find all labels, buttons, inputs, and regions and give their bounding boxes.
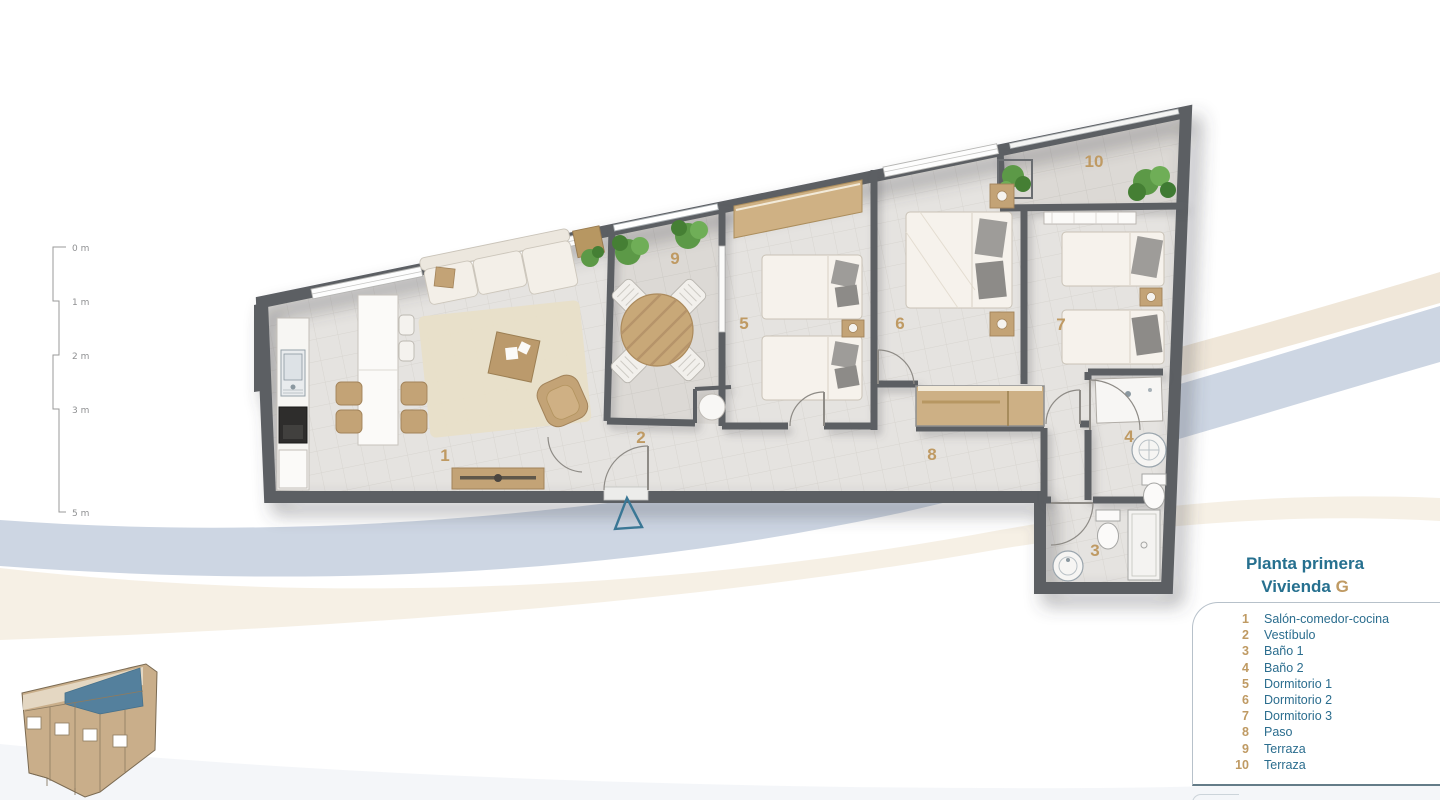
dining-chair-tan bbox=[336, 382, 362, 405]
legend-label: Baño 2 bbox=[1264, 661, 1304, 675]
oven-door bbox=[283, 425, 303, 439]
room-number-3: 3 bbox=[1090, 541, 1099, 560]
room-number-2: 2 bbox=[636, 428, 645, 447]
scale-label-0m: 0 m bbox=[72, 244, 89, 254]
legend-num: 10 bbox=[1227, 758, 1249, 772]
legend-label: Vestíbulo bbox=[1264, 628, 1315, 642]
legend-row: 9Terraza bbox=[1227, 742, 1440, 758]
scale-label-5m: 5 m bbox=[72, 509, 89, 519]
room-number-5: 5 bbox=[739, 314, 748, 333]
wardrobe-door-track bbox=[918, 386, 1042, 391]
pillow bbox=[835, 285, 860, 308]
wardrobe-paso bbox=[916, 386, 1044, 426]
pillow bbox=[831, 260, 859, 288]
coffee-table-paper bbox=[505, 347, 518, 360]
legend-row: 6Dormitorio 2 bbox=[1227, 693, 1440, 709]
legend-row: 2Vestíbulo bbox=[1227, 628, 1440, 644]
legend-num: 9 bbox=[1227, 742, 1249, 756]
legend-label: Baño 1 bbox=[1264, 644, 1304, 658]
washbasin-round bbox=[1053, 551, 1083, 581]
legend-row: 10Terraza bbox=[1227, 758, 1440, 774]
scale-label-3m: 3 m bbox=[72, 406, 89, 416]
hall-round-table bbox=[699, 394, 725, 420]
legend-row: 4Baño 2 bbox=[1227, 661, 1440, 677]
shower-tray bbox=[1128, 510, 1160, 580]
subtitle-word: Vivienda bbox=[1261, 577, 1331, 596]
sofa-seat bbox=[521, 240, 578, 295]
legend-row: 8Paso bbox=[1227, 725, 1440, 741]
dining-chair-white bbox=[399, 315, 414, 335]
legend-num: 5 bbox=[1227, 677, 1249, 691]
dining-chair-tan bbox=[401, 410, 427, 433]
scale-label-1m: 1 m bbox=[72, 298, 89, 308]
vanity-faucet bbox=[1125, 391, 1131, 397]
pillow bbox=[975, 218, 1008, 258]
room-legend: 1Salón-comedor-cocina 2Vestíbulo 3Baño 1… bbox=[1192, 602, 1440, 786]
legend-row: 3Baño 1 bbox=[1227, 644, 1440, 660]
legend-row: 1Salón-comedor-cocina bbox=[1227, 612, 1440, 628]
vanity bbox=[1095, 377, 1162, 423]
tv-console bbox=[452, 468, 544, 489]
pillow bbox=[1131, 314, 1162, 355]
next-section-hint bbox=[1192, 794, 1239, 800]
kitchen-cabinet bbox=[279, 450, 307, 488]
pillow bbox=[975, 261, 1007, 300]
legend-label: Terraza bbox=[1264, 758, 1306, 772]
legend-row: 7Dormitorio 3 bbox=[1227, 709, 1440, 725]
room-number-8: 8 bbox=[927, 445, 936, 464]
page: 1 2 3 4 5 6 7 8 9 10 0 m 1 m 2 m 3 m 5 m bbox=[0, 0, 1440, 800]
closet-shelf bbox=[1044, 212, 1136, 224]
legend-num: 7 bbox=[1227, 709, 1249, 723]
legend-num: 2 bbox=[1227, 628, 1249, 642]
nightstand-knob bbox=[997, 319, 1007, 329]
kitchen bbox=[277, 318, 309, 490]
page-subtitle: Vivienda G bbox=[1192, 575, 1418, 598]
nightstand-knob bbox=[849, 324, 858, 333]
legend-row: 5Dormitorio 1 bbox=[1227, 677, 1440, 693]
room-number-9: 9 bbox=[670, 249, 679, 268]
legend-num: 6 bbox=[1227, 693, 1249, 707]
subtitle-letter: G bbox=[1336, 577, 1349, 596]
scale-bar: 0 m 1 m 2 m 3 m 5 m bbox=[53, 244, 89, 519]
scale-label-2m: 2 m bbox=[72, 352, 89, 362]
room-number-4: 4 bbox=[1124, 427, 1134, 446]
legend-label: Dormitorio 1 bbox=[1264, 677, 1332, 691]
legend-num: 8 bbox=[1227, 725, 1249, 739]
sofa-cushion-tan bbox=[434, 267, 455, 288]
legend-label: Paso bbox=[1264, 725, 1293, 739]
room-number-7: 7 bbox=[1056, 315, 1065, 334]
room-number-6: 6 bbox=[895, 314, 904, 333]
plan-title: Planta primera Vivienda G bbox=[1192, 552, 1418, 598]
glass-door-terrace9 bbox=[719, 246, 725, 332]
terrace-table bbox=[621, 294, 693, 366]
tv-knob bbox=[494, 474, 502, 482]
dining-chair-tan bbox=[336, 410, 362, 433]
legend-label: Salón-comedor-cocina bbox=[1264, 612, 1389, 626]
sink-basin bbox=[284, 354, 302, 380]
legend-num: 3 bbox=[1227, 644, 1249, 658]
legend-num: 4 bbox=[1227, 661, 1249, 675]
toilet bbox=[1142, 474, 1166, 509]
pillow bbox=[831, 341, 859, 369]
pillow bbox=[834, 365, 859, 389]
legend-num: 1 bbox=[1227, 612, 1249, 626]
room-number-1: 1 bbox=[440, 446, 449, 465]
nightstand-knob bbox=[1147, 293, 1156, 302]
dining-chair-white bbox=[399, 341, 414, 361]
dining-chair-tan bbox=[401, 382, 427, 405]
legend-label: Dormitorio 3 bbox=[1264, 709, 1332, 723]
legend-label: Dormitorio 2 bbox=[1264, 693, 1332, 707]
page-title: Planta primera bbox=[1192, 552, 1418, 575]
nightstand-knob bbox=[997, 191, 1007, 201]
room-number-10: 10 bbox=[1085, 152, 1104, 171]
sink-faucet bbox=[291, 385, 296, 390]
coffee-table bbox=[488, 332, 540, 382]
legend-label: Terraza bbox=[1264, 742, 1306, 756]
